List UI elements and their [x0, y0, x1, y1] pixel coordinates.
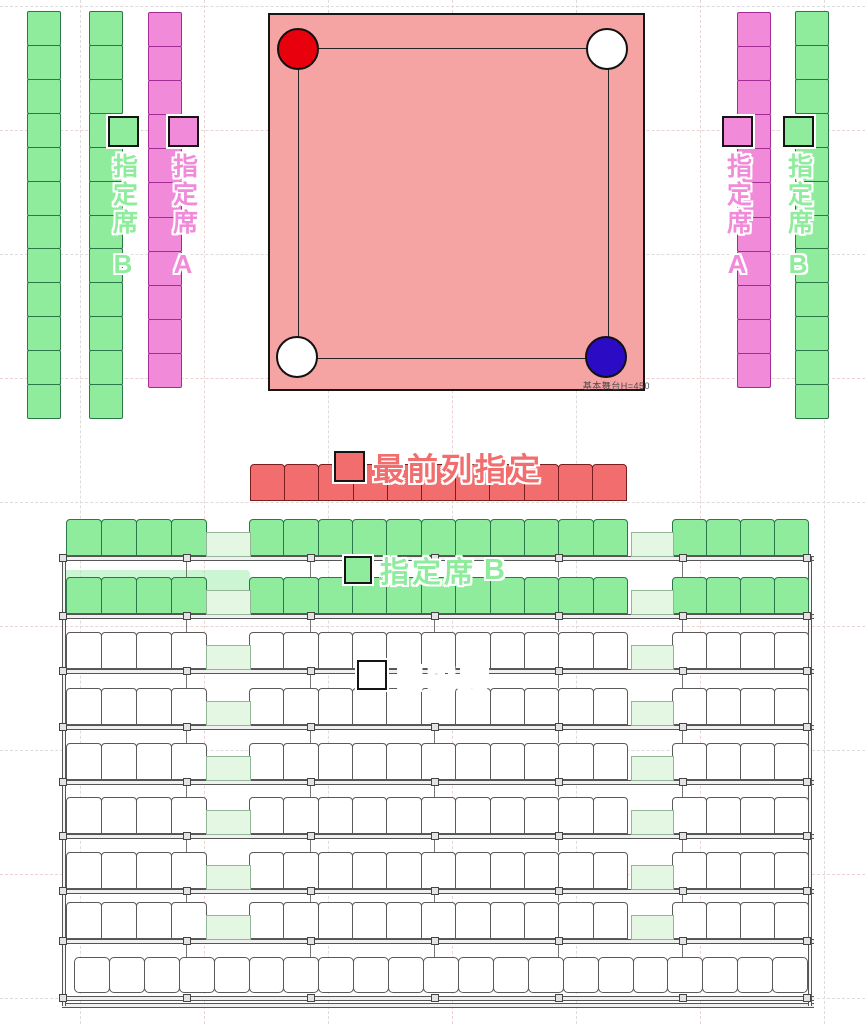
rail-post [431, 832, 439, 840]
seat[interactable] [214, 957, 250, 993]
rail-tick [682, 838, 683, 852]
seat[interactable] [737, 80, 771, 115]
seat[interactable] [772, 957, 808, 993]
seat[interactable] [795, 350, 829, 385]
corner-post-white-1 [586, 28, 628, 70]
seat[interactable] [455, 852, 490, 889]
seat[interactable] [27, 147, 61, 182]
seat[interactable] [737, 319, 771, 354]
seat[interactable] [136, 902, 172, 939]
aisle-step [631, 865, 674, 890]
seat[interactable] [524, 902, 559, 939]
label-text: 最前列指定 [373, 444, 543, 489]
seat[interactable] [493, 957, 529, 993]
seat[interactable] [101, 577, 137, 614]
seat[interactable] [171, 632, 207, 669]
seat[interactable] [490, 743, 525, 780]
seat[interactable] [558, 688, 593, 725]
seat[interactable] [524, 852, 559, 889]
rail-post [183, 887, 191, 895]
seat[interactable] [318, 852, 353, 889]
seat[interactable] [740, 519, 775, 556]
seat[interactable] [318, 797, 353, 834]
seat[interactable] [558, 519, 593, 556]
rail-tick [558, 838, 559, 852]
seat[interactable] [458, 957, 494, 993]
rail-post [307, 887, 315, 895]
rail-tick [682, 618, 683, 632]
seat[interactable] [593, 688, 628, 725]
seat[interactable] [421, 852, 456, 889]
gridline-horizontal [0, 6, 865, 7]
rail-post [183, 778, 191, 786]
seat[interactable] [774, 519, 809, 556]
seat[interactable] [249, 632, 284, 669]
seat-row-group [66, 743, 207, 780]
label-letter: B [484, 554, 508, 587]
seat[interactable] [136, 852, 172, 889]
seat[interactable] [672, 852, 707, 889]
rail-post [431, 723, 439, 731]
label-reserved-a-left: 指定席 A [163, 116, 203, 280]
seat-row-group [672, 577, 809, 614]
seat[interactable] [136, 688, 172, 725]
seat[interactable] [27, 11, 61, 46]
seat[interactable] [89, 11, 123, 46]
seat[interactable] [672, 688, 707, 725]
seat[interactable] [89, 384, 123, 419]
seat[interactable] [249, 743, 284, 780]
seat[interactable] [352, 852, 387, 889]
seat-row-group [66, 519, 207, 556]
rail-post [307, 723, 315, 731]
seat[interactable] [795, 45, 829, 80]
rail-tick [310, 838, 311, 852]
seat[interactable] [66, 902, 102, 939]
seat[interactable] [352, 902, 387, 939]
rail-post [679, 554, 687, 562]
seat[interactable] [318, 743, 353, 780]
seat[interactable] [27, 215, 61, 250]
seat[interactable] [672, 743, 707, 780]
seat[interactable] [740, 852, 775, 889]
seat[interactable] [592, 464, 627, 501]
seat[interactable] [706, 797, 741, 834]
rail-post [59, 887, 67, 895]
rail-tick [558, 673, 559, 688]
rail-post [803, 778, 811, 786]
seat[interactable] [66, 577, 102, 614]
seat[interactable] [171, 902, 207, 939]
label-front-row-reserved: 最前列指定 [334, 444, 543, 489]
seat[interactable] [558, 852, 593, 889]
seat[interactable] [27, 350, 61, 385]
seat[interactable] [89, 350, 123, 385]
seat[interactable] [352, 797, 387, 834]
rail-post [803, 887, 811, 895]
rail-post [59, 994, 67, 1002]
seat[interactable] [421, 902, 456, 939]
legend-swatch-white [357, 660, 387, 690]
seat[interactable] [352, 743, 387, 780]
seat[interactable] [74, 957, 110, 993]
seat[interactable] [171, 577, 207, 614]
seat-row-group [249, 902, 628, 939]
seat[interactable] [795, 79, 829, 114]
seat[interactable] [490, 632, 525, 669]
seat[interactable] [249, 957, 285, 993]
seat-row-group [249, 743, 628, 780]
seat[interactable] [593, 743, 628, 780]
seat[interactable] [706, 519, 741, 556]
rail-post [555, 937, 563, 945]
seat[interactable] [706, 632, 741, 669]
rail-post [59, 612, 67, 620]
aisle-step [206, 756, 251, 781]
seat[interactable] [558, 577, 593, 614]
seat[interactable] [558, 797, 593, 834]
seat[interactable] [318, 688, 353, 725]
seat[interactable] [455, 797, 490, 834]
seat[interactable] [706, 688, 741, 725]
bottom-row [74, 957, 808, 993]
seat[interactable] [593, 519, 628, 556]
rail-post [803, 937, 811, 945]
aisle-step [631, 810, 674, 835]
seat[interactable] [66, 852, 102, 889]
label-reserved-b-right: 指定席 B [778, 116, 818, 280]
rail-tick [558, 560, 559, 577]
seat[interactable] [283, 957, 319, 993]
gridline-horizontal [0, 626, 865, 627]
rail-tick [186, 618, 187, 632]
seat[interactable] [136, 743, 172, 780]
rail-post [59, 778, 67, 786]
seat[interactable] [148, 285, 182, 320]
seat[interactable] [423, 957, 459, 993]
seat[interactable] [171, 743, 207, 780]
seat[interactable] [148, 353, 182, 388]
rail-tick [310, 618, 311, 632]
seat[interactable] [702, 957, 738, 993]
seat[interactable] [558, 464, 593, 501]
seat[interactable] [490, 852, 525, 889]
seat[interactable] [101, 902, 137, 939]
label-reserved-a-right: 指定席 A [717, 116, 757, 280]
seat[interactable] [598, 957, 634, 993]
seat[interactable] [171, 797, 207, 834]
seat[interactable] [593, 902, 628, 939]
seat[interactable] [774, 688, 809, 725]
label-text: 指定席 [380, 549, 476, 591]
seat[interactable] [737, 285, 771, 320]
seat[interactable] [672, 902, 707, 939]
seat-row-group [672, 797, 809, 834]
seat[interactable] [318, 957, 354, 993]
rail-post [679, 832, 687, 840]
seat[interactable] [249, 688, 284, 725]
seat[interactable] [524, 743, 559, 780]
seat-column-left-outer-green [27, 11, 61, 419]
seat[interactable] [171, 688, 207, 725]
seat[interactable] [633, 957, 669, 993]
rail-tick [186, 673, 187, 688]
rail-post [431, 887, 439, 895]
rail-post [59, 554, 67, 562]
seat[interactable] [89, 79, 123, 114]
seat[interactable] [528, 957, 564, 993]
seat[interactable] [66, 797, 102, 834]
seat[interactable] [558, 902, 593, 939]
rail-post [307, 554, 315, 562]
seat[interactable] [89, 282, 123, 317]
seat-row-group [66, 632, 207, 669]
seat[interactable] [740, 797, 775, 834]
label-free-seating: 自由席 [357, 654, 491, 696]
seat[interactable] [740, 632, 775, 669]
aisle-step [631, 590, 674, 615]
aisle-step [206, 645, 251, 670]
seat[interactable] [740, 688, 775, 725]
rail-post [59, 832, 67, 840]
rail-post [59, 723, 67, 731]
corner-post-red [277, 28, 319, 70]
rail-tick [434, 943, 435, 957]
seat[interactable] [283, 577, 318, 614]
rail-tick [434, 838, 435, 852]
seat[interactable] [101, 852, 137, 889]
rail-post [803, 667, 811, 675]
rail-post [431, 994, 439, 1002]
seat[interactable] [740, 577, 775, 614]
aisle-step [631, 701, 674, 726]
seat[interactable] [27, 181, 61, 216]
seat[interactable] [672, 632, 707, 669]
seat-row-group [672, 852, 809, 889]
seat[interactable] [795, 282, 829, 317]
rail-post [555, 778, 563, 786]
seat[interactable] [148, 12, 182, 47]
seat[interactable] [179, 957, 215, 993]
rail-tick [310, 560, 311, 577]
seat[interactable] [774, 743, 809, 780]
seat[interactable] [283, 902, 318, 939]
seat[interactable] [563, 957, 599, 993]
seat[interactable] [353, 957, 389, 993]
seat[interactable] [524, 688, 559, 725]
rail-post [679, 778, 687, 786]
seat[interactable] [386, 852, 421, 889]
rail-tick [434, 618, 435, 632]
seat[interactable] [795, 316, 829, 351]
seat[interactable] [283, 519, 318, 556]
seat[interactable] [283, 797, 318, 834]
seat[interactable] [136, 519, 172, 556]
rail-tick [310, 943, 311, 957]
seat-row-group [249, 852, 628, 889]
stage-height-note: 基本舞台H=450 [538, 379, 650, 392]
seat[interactable] [148, 46, 182, 81]
seat[interactable] [774, 902, 809, 939]
seat[interactable] [593, 852, 628, 889]
seat[interactable] [593, 577, 628, 614]
legend-swatch-green [108, 116, 139, 147]
rail-post [803, 554, 811, 562]
seat[interactable] [27, 282, 61, 317]
seat[interactable] [66, 519, 102, 556]
seat[interactable] [774, 632, 809, 669]
seat[interactable] [249, 519, 284, 556]
seat[interactable] [706, 577, 741, 614]
seat[interactable] [737, 46, 771, 81]
seat[interactable] [249, 797, 284, 834]
seat[interactable] [249, 902, 284, 939]
rail-post [555, 667, 563, 675]
seat[interactable] [171, 519, 207, 556]
seat[interactable] [593, 632, 628, 669]
ring-apron-line [298, 48, 609, 359]
rail-bottom-outer [62, 1003, 814, 1008]
seat[interactable] [318, 902, 353, 939]
seat[interactable] [66, 632, 102, 669]
seat[interactable] [283, 632, 318, 669]
aisle-step [206, 590, 251, 615]
seat[interactable] [27, 113, 61, 148]
seat[interactable] [667, 957, 703, 993]
seat[interactable] [27, 384, 61, 419]
seat[interactable] [672, 577, 707, 614]
rail-post [183, 612, 191, 620]
seat[interactable] [283, 743, 318, 780]
seat[interactable] [284, 464, 319, 501]
seat[interactable] [27, 316, 61, 351]
seat[interactable] [250, 464, 285, 501]
seat[interactable] [737, 957, 773, 993]
rail-tick [310, 729, 311, 743]
aisle-step [631, 756, 674, 781]
label-text: 自由席 [395, 654, 491, 696]
seat[interactable] [558, 743, 593, 780]
seat[interactable] [740, 902, 775, 939]
seat[interactable] [283, 688, 318, 725]
seat[interactable] [706, 743, 741, 780]
seat[interactable] [795, 384, 829, 419]
aisle-step [631, 645, 674, 670]
seat[interactable] [249, 852, 284, 889]
seat[interactable] [524, 632, 559, 669]
seat-row-group [249, 797, 628, 834]
seat[interactable] [593, 797, 628, 834]
seat[interactable] [774, 577, 809, 614]
seat[interactable] [89, 316, 123, 351]
seat[interactable] [672, 797, 707, 834]
seat[interactable] [774, 852, 809, 889]
seat[interactable] [148, 80, 182, 115]
seat[interactable] [524, 519, 559, 556]
rail-post [803, 832, 811, 840]
seat[interactable] [490, 902, 525, 939]
rail-post [679, 723, 687, 731]
seat[interactable] [490, 797, 525, 834]
label-letter: A [728, 249, 747, 280]
seat[interactable] [89, 45, 123, 80]
rail-post [679, 612, 687, 620]
seat[interactable] [136, 632, 172, 669]
seat[interactable] [774, 797, 809, 834]
seat[interactable] [171, 852, 207, 889]
seat-row-group [672, 632, 809, 669]
seat[interactable] [101, 688, 137, 725]
seat[interactable] [148, 319, 182, 354]
seat[interactable] [421, 797, 456, 834]
rail-post [307, 937, 315, 945]
seat[interactable] [386, 797, 421, 834]
seat[interactable] [706, 852, 741, 889]
seat[interactable] [455, 743, 490, 780]
seat[interactable] [740, 743, 775, 780]
seat[interactable] [706, 902, 741, 939]
seat[interactable] [318, 632, 353, 669]
seat[interactable] [101, 797, 137, 834]
label-letter: B [789, 249, 808, 280]
corner-post-white-2 [276, 336, 318, 378]
rail-tick [310, 673, 311, 688]
rail-post [555, 887, 563, 895]
seat[interactable] [795, 11, 829, 46]
seat[interactable] [101, 519, 137, 556]
seat[interactable] [455, 902, 490, 939]
seat[interactable] [283, 852, 318, 889]
rail-post [431, 937, 439, 945]
seat[interactable] [27, 45, 61, 80]
seat[interactable] [672, 519, 707, 556]
seat[interactable] [421, 743, 456, 780]
seat[interactable] [101, 632, 137, 669]
rail-post [679, 937, 687, 945]
seat[interactable] [144, 957, 180, 993]
seat-row-group [66, 852, 207, 889]
rail-post [183, 554, 191, 562]
seat[interactable] [524, 797, 559, 834]
seat[interactable] [490, 688, 525, 725]
seat-row-group [672, 519, 809, 556]
seat-row-group [66, 797, 207, 834]
seat[interactable] [388, 957, 424, 993]
seat[interactable] [27, 248, 61, 283]
legend-swatch-pink [168, 116, 199, 147]
seat[interactable] [524, 577, 559, 614]
label-text: 指定席 [111, 153, 136, 237]
seat[interactable] [66, 743, 102, 780]
seat[interactable] [101, 743, 137, 780]
seating-chart: 基本舞台H=450 指定席 B 指定席 A 指定席 A 指定席 B 最前列指定 … [0, 0, 865, 1024]
seat[interactable] [737, 353, 771, 388]
seat[interactable] [109, 957, 145, 993]
seat[interactable] [136, 577, 172, 614]
seat[interactable] [386, 743, 421, 780]
aisle-step [206, 532, 251, 557]
seat[interactable] [737, 12, 771, 47]
rail-tick [682, 560, 683, 577]
seat[interactable] [386, 902, 421, 939]
seat[interactable] [27, 79, 61, 114]
seat[interactable] [249, 577, 284, 614]
rail-post [307, 832, 315, 840]
seat[interactable] [558, 632, 593, 669]
seat[interactable] [136, 797, 172, 834]
seat[interactable] [66, 688, 102, 725]
seat-row-group [672, 688, 809, 725]
